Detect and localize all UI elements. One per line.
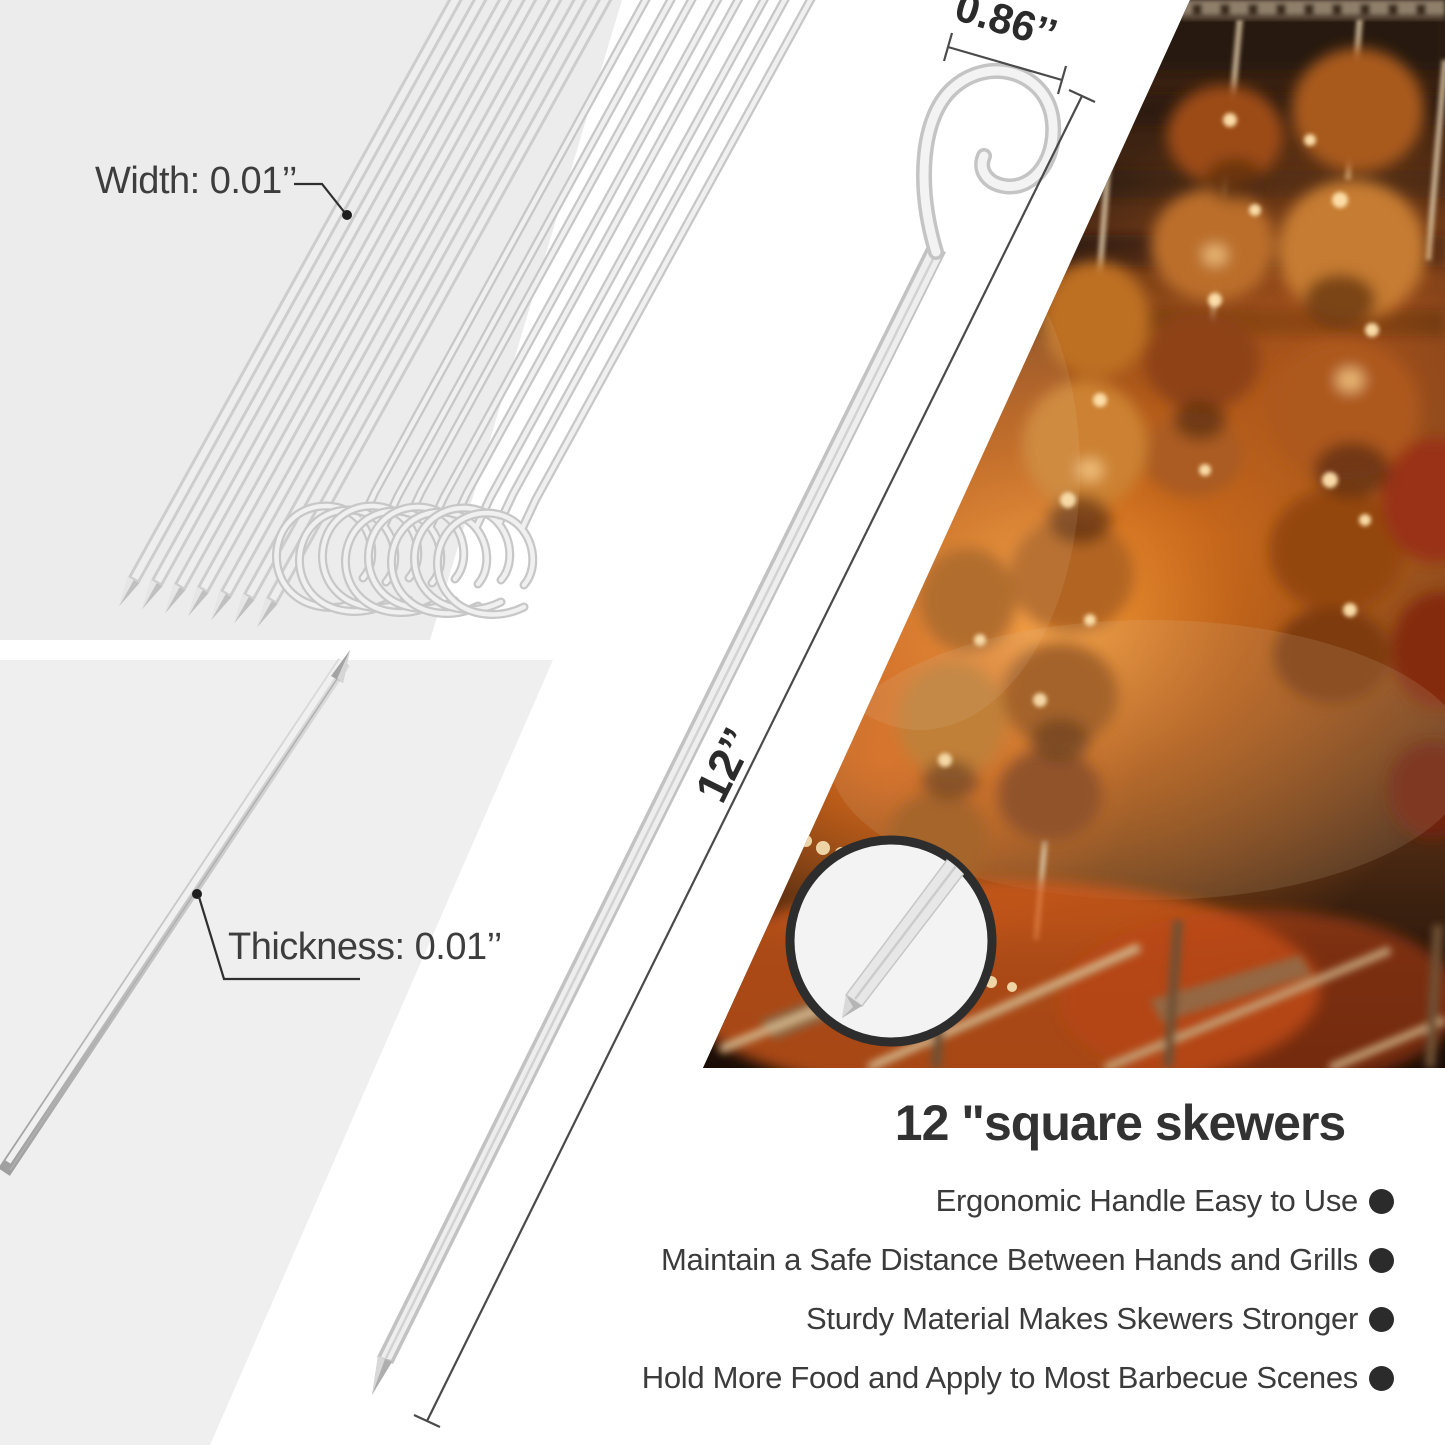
bullet-dot-icon [1369,1307,1394,1332]
feature-list: Ergonomic Handle Easy to Use Maintain a … [642,1184,1394,1420]
thickness-label: Thickness: 0.01’’ [228,928,502,966]
feature-bullet: Maintain a Safe Distance Between Hands a… [642,1243,1394,1277]
bbq-grill-photo [620,0,1445,1100]
feature-text: Maintain a Safe Distance Between Hands a… [661,1242,1358,1278]
tip-detail-inset [790,840,992,1042]
feature-bullet: Sturdy Material Makes Skewers Stronger [642,1302,1394,1336]
bullet-dot-icon [1369,1366,1394,1391]
handle-width-dimension: 0.86’’ [950,0,1063,58]
feature-bullet: Hold More Food and Apply to Most Barbecu… [642,1361,1394,1395]
width-label: Width: 0.01’’ [95,162,297,200]
feature-text: Ergonomic Handle Easy to Use [936,1183,1358,1219]
grill-top-bar [1180,0,1445,20]
product-infographic: 0.86’’ 12’’ Width: 0.01’’ Thickness: 0.0… [0,0,1445,1445]
feature-bullet: Ergonomic Handle Easy to Use [642,1184,1394,1218]
bullet-dot-icon [1369,1248,1394,1273]
feature-text: Hold More Food and Apply to Most Barbecu… [642,1360,1358,1396]
bullet-dot-icon [1369,1189,1394,1214]
page-title: 12 "square skewers [830,1094,1410,1152]
feature-text: Sturdy Material Makes Skewers Stronger [806,1301,1358,1337]
